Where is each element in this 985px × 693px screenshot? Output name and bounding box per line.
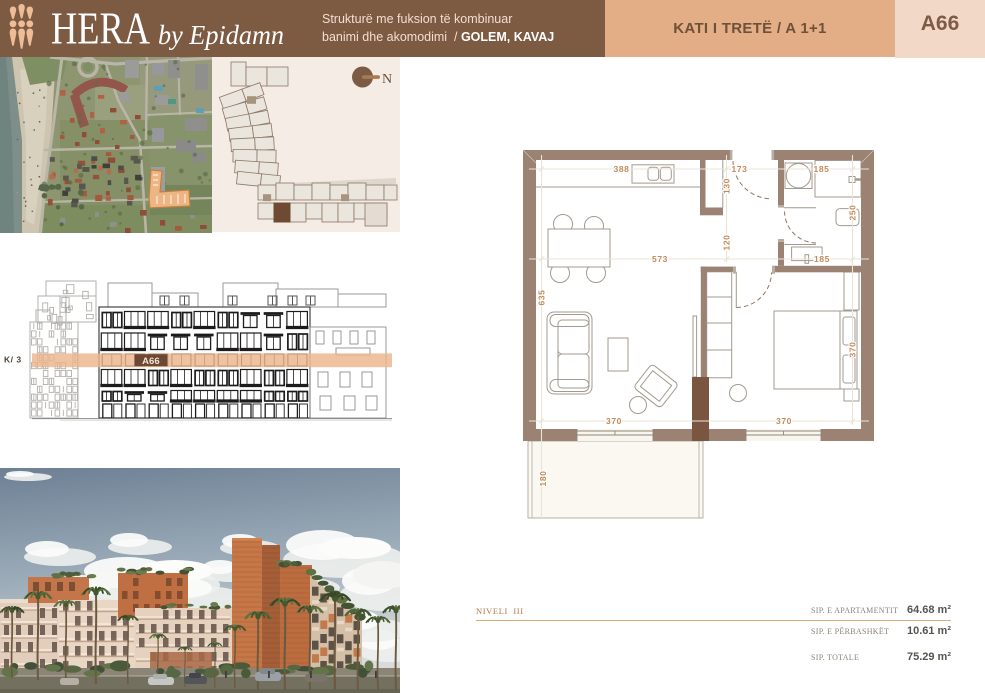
svg-text:HERA: HERA [51, 3, 150, 54]
svg-text:370: 370 [776, 416, 792, 426]
svg-text:370: 370 [848, 342, 858, 358]
svg-text:370: 370 [606, 416, 622, 426]
svg-text:635: 635 [537, 290, 547, 306]
svg-text:573: 573 [652, 254, 668, 264]
svg-text:120: 120 [722, 235, 732, 251]
svg-text:A66: A66 [142, 356, 159, 367]
svg-text:N: N [382, 72, 392, 87]
svg-text:by Epidamn: by Epidamn [158, 20, 284, 50]
svg-text:388: 388 [614, 164, 630, 174]
svg-text:130: 130 [722, 178, 732, 194]
svg-text:180: 180 [538, 471, 548, 487]
svg-text:250: 250 [848, 205, 858, 221]
svg-text:K/ 3: K/ 3 [4, 355, 22, 365]
svg-text:185: 185 [814, 164, 830, 174]
svg-text:185: 185 [814, 254, 830, 264]
svg-text:173: 173 [732, 164, 748, 174]
